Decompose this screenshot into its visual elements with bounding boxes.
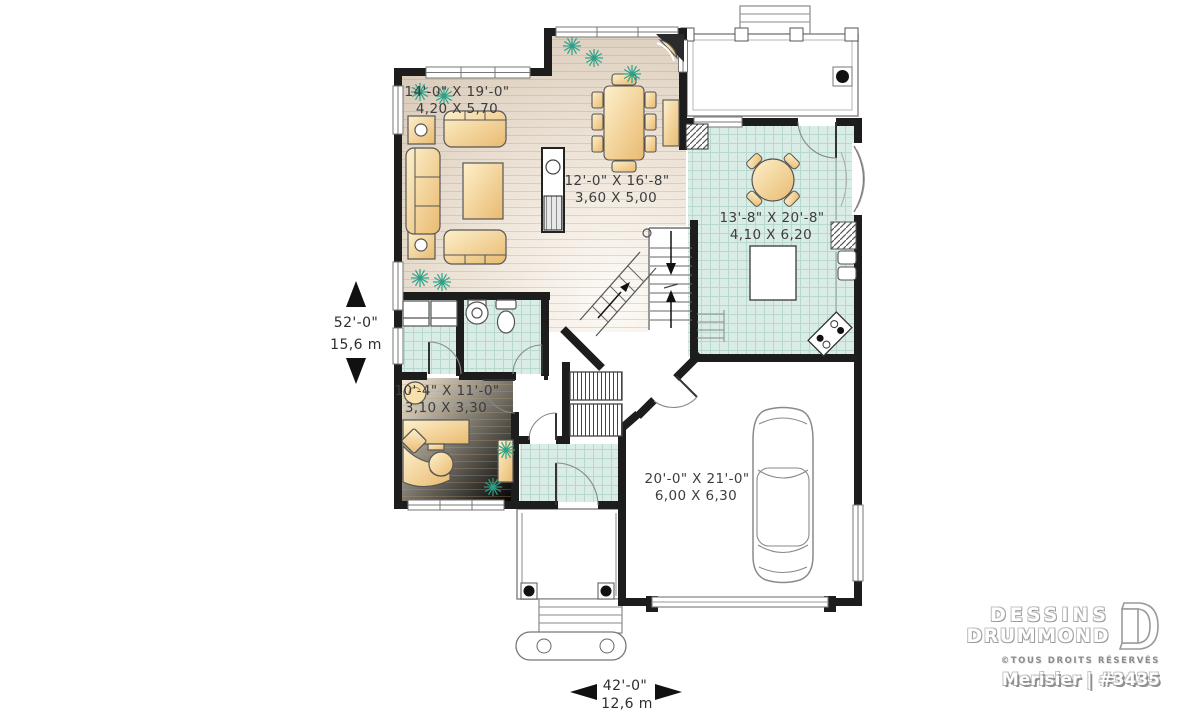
living-room-window-top [426,67,530,78]
great-room-label-metric: 3,60 X 5,00 [575,190,657,206]
rear-porch [681,6,858,116]
brand-name: DESSINS DRUMMOND [967,606,1110,646]
kitchen-island [750,246,796,300]
sideboard [663,100,679,146]
stair-arrow-up [666,290,676,328]
closets [570,372,622,436]
arrow-right-icon [655,684,682,700]
porch-post [836,70,849,83]
arrow-left-icon [570,684,597,700]
rights-text: ©TOUS DROITS RÉSERVÉS [967,657,1160,666]
refrigerator [831,222,856,249]
breakfast-table [745,152,800,207]
porch-steps [539,599,622,633]
tv-unit [542,148,564,232]
living-room-window-left-2 [393,262,403,310]
living-room-label-metric: 4,20 X 5,70 [416,101,498,117]
foyer-floor [520,444,619,502]
foyer-closet-door [529,413,556,440]
plan-number: Merisier | #3435 [967,672,1160,689]
sofa-left [406,148,440,234]
coffee-table [463,163,503,219]
arrow-down-icon [346,358,366,384]
laundry-window-left [393,328,403,364]
floor-plan-page: 14'-0" X 19'-0" 4,20 X 5,70 12'-0" X 16'… [0,0,1200,711]
brand-d-icon [1118,599,1160,653]
brand-line2: DRUMMOND [967,627,1110,646]
kitchen-label-metric: 4,10 X 6,20 [730,227,812,243]
stair-arrow-down [666,231,676,275]
depth-metric: 15,6 m [330,337,382,353]
garage-window-right [853,505,863,581]
garage-label-metric: 6,00 X 6,30 [655,488,737,504]
great-room-label-imperial: 12'-0" X 16'-8" [565,173,670,189]
office-label-imperial: 10'-4" X 11'-0" [395,383,500,399]
front-porch [516,509,626,660]
toilet [496,300,516,333]
dining-table [604,86,644,160]
garage-label-imperial: 20'-0" X 21'-0" [645,471,750,487]
car [753,408,813,583]
arrow-up-icon [346,281,366,307]
pedestal-sink [466,300,488,324]
living-room-window-left-1 [393,86,403,134]
depth-imperial: 52'-0" [334,315,378,331]
kitchen-label-imperial: 13'-8" X 20'-8" [720,210,825,226]
width-metric: 12,6 m [601,696,653,711]
pantry [686,124,708,149]
office-window-bottom [408,500,504,510]
brand-line1: DESSINS [967,606,1110,625]
office-label-metric: 3,10 X 3,30 [405,400,487,416]
width-dimension: 42'-0" 12,6 m [570,678,682,711]
width-imperial: 42'-0" [603,678,647,694]
living-room-label-imperial: 14'-0" X 19'-0" [405,84,510,100]
garage-service-door [654,376,697,407]
depth-dimension: 52'-0" 15,6 m [330,281,382,384]
brand-logo-block: DESSINS DRUMMOND ©TOUS DROITS RÉSERVÉS M… [967,599,1160,690]
sofa-bottom [444,230,506,264]
